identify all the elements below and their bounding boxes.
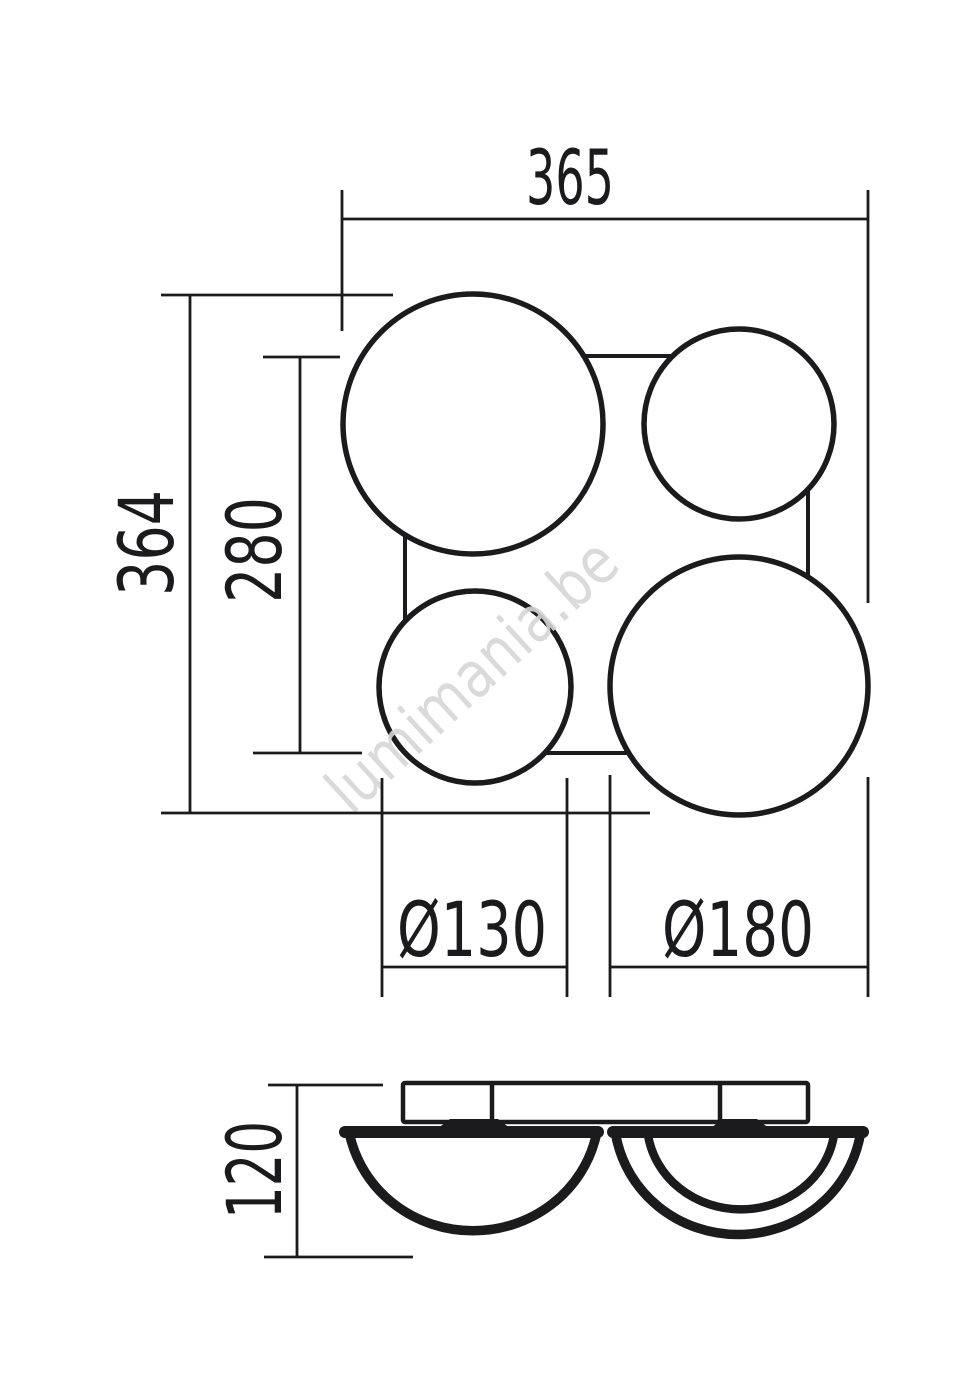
dim-364-label: 364 xyxy=(102,490,191,596)
dim-280-label: 280 xyxy=(210,497,299,603)
dim-120-label: 120 xyxy=(210,1121,299,1219)
globe-top-left-large xyxy=(343,294,603,554)
shade-rim-left xyxy=(339,1126,604,1138)
dome-right-inner-outline xyxy=(648,1135,834,1209)
canopy-plate xyxy=(403,1083,808,1122)
side-view xyxy=(339,1083,869,1235)
dim-dia180-label: Ø180 xyxy=(662,885,814,974)
dim-dia130-label: Ø130 xyxy=(397,885,547,974)
globe-bottom-right-large xyxy=(610,557,868,815)
globe-top-right-small xyxy=(644,329,834,519)
technical-drawing-page: lumimania.be xyxy=(0,0,980,1400)
lamp-dimension-drawing: lumimania.be xyxy=(0,0,980,1400)
dim-365-label: 365 xyxy=(526,133,614,222)
dome-left-outline xyxy=(350,1136,596,1231)
